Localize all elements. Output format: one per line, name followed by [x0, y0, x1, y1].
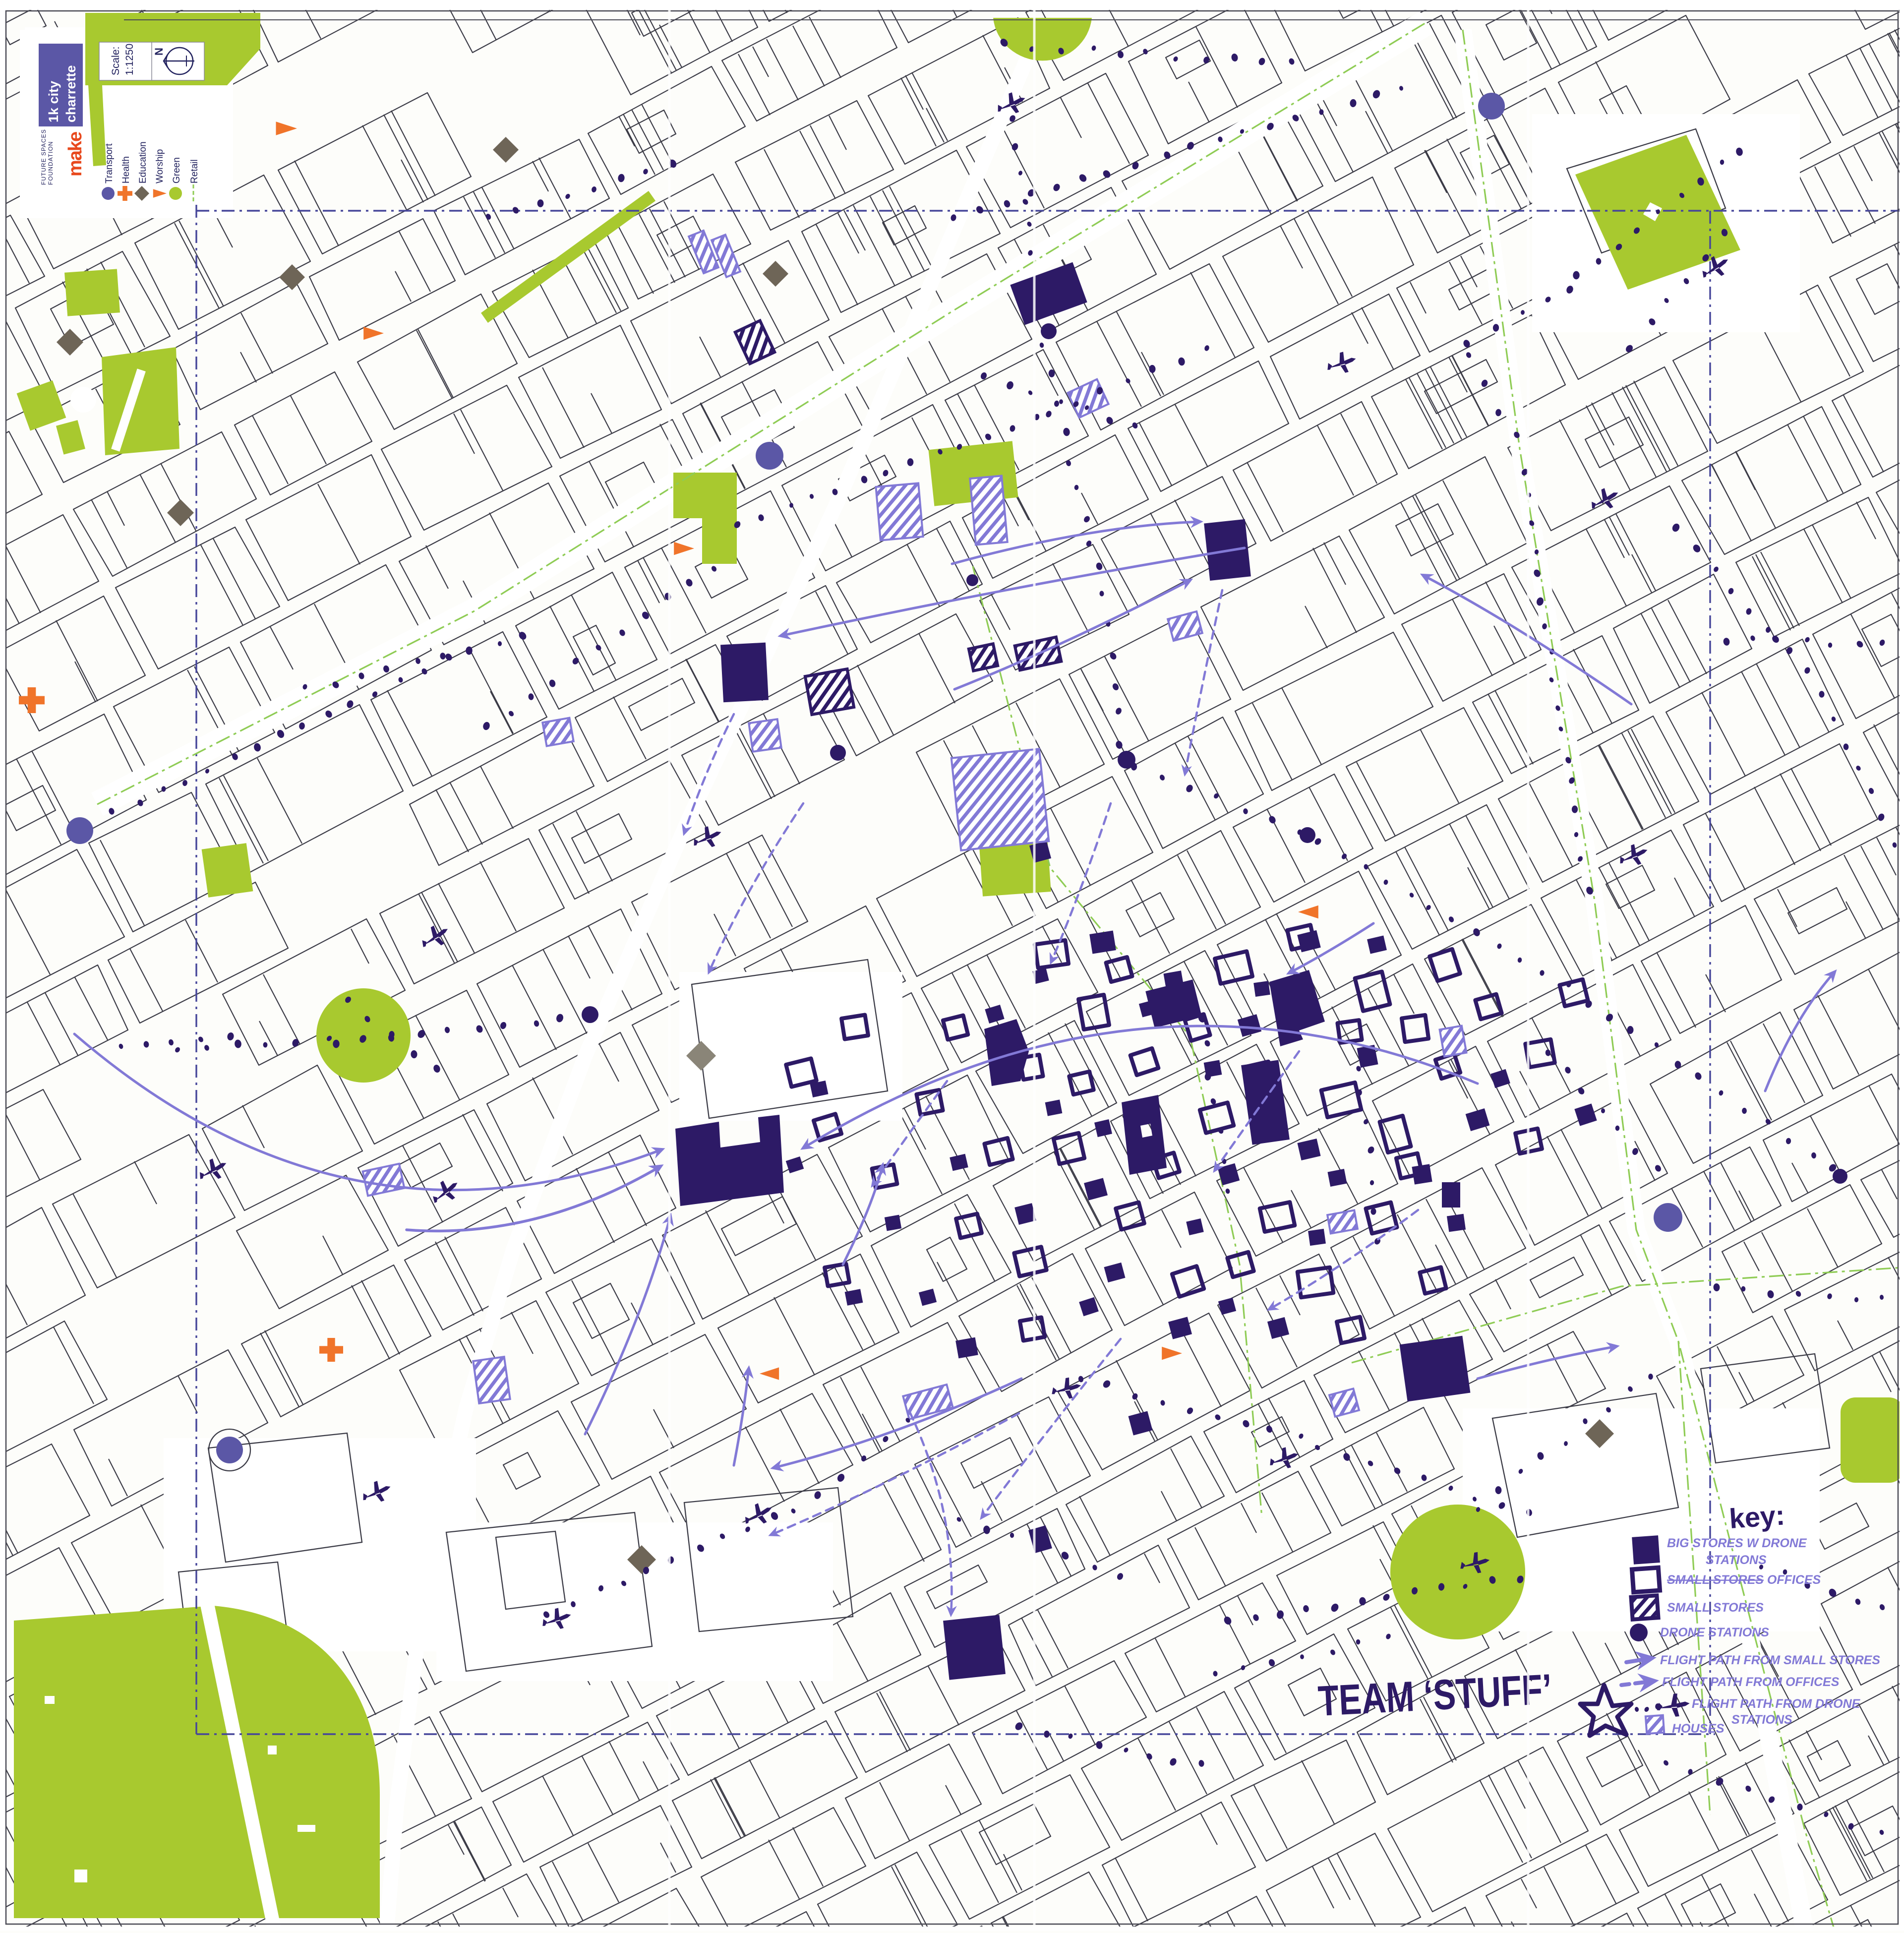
svg-text:1k city: 1k city — [46, 81, 61, 122]
svg-text:BIG STORES W DRONE: BIG STORES W DRONE — [1667, 1536, 1807, 1550]
svg-text:STATIONS: STATIONS — [1731, 1713, 1792, 1727]
svg-text:Green: Green — [172, 157, 182, 183]
svg-text:Worship: Worship — [155, 149, 165, 183]
svg-text:key:: key: — [1728, 1499, 1785, 1534]
svg-text:N: N — [153, 48, 165, 56]
svg-text:SMALL STORES OFFICES: SMALL STORES OFFICES — [1667, 1573, 1821, 1587]
svg-text:SMALL STORES: SMALL STORES — [1667, 1601, 1764, 1615]
svg-text:Transport: Transport — [104, 143, 115, 183]
svg-text:FOUNDATION: FOUNDATION — [47, 141, 54, 185]
svg-text:Retail: Retail — [189, 159, 200, 183]
svg-text:Education: Education — [138, 141, 148, 183]
svg-text:Scale:: Scale: — [110, 47, 121, 75]
svg-text:HOUSES: HOUSES — [1672, 1722, 1725, 1736]
svg-text:FUTURE SPACES: FUTURE SPACES — [40, 129, 47, 185]
svg-text:STATIONS: STATIONS — [1706, 1553, 1767, 1567]
svg-text:DRONE STATIONS: DRONE STATIONS — [1660, 1626, 1769, 1639]
svg-text:charrette: charrette — [63, 65, 78, 122]
svg-text:make: make — [65, 132, 86, 177]
svg-text:FLIGHT PATH FROM DRONE: FLIGHT PATH FROM DRONE — [1692, 1697, 1861, 1711]
svg-text:FLIGHT PATH FROM OFFICES: FLIGHT PATH FROM OFFICES — [1662, 1675, 1840, 1689]
svg-text:Health: Health — [121, 156, 131, 183]
svg-text:FLIGHT PATH FROM SMALL STORES: FLIGHT PATH FROM SMALL STORES — [1660, 1653, 1880, 1667]
svg-text:1:1250: 1:1250 — [124, 44, 135, 75]
